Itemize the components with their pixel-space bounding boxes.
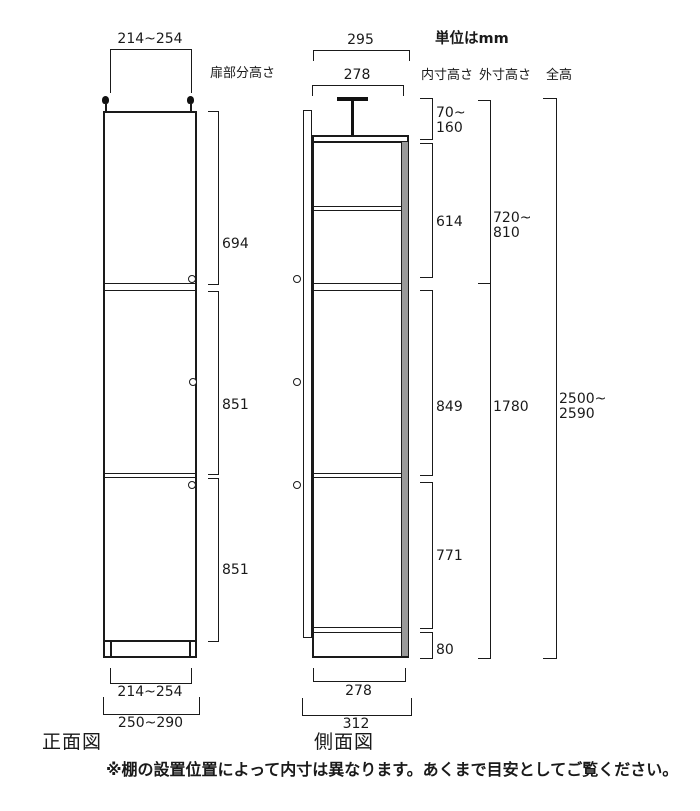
side-view-title: 側面図 [314,735,374,750]
side-bottom-outer-dim: 312 [302,717,410,732]
front-cabinet-outline [103,111,197,658]
total-height-line2: 2590 [559,406,595,422]
side-top-inner-dim: 278 [312,68,402,83]
side-door-knob-3 [293,481,301,489]
front-top-width-dim: 214~254 [110,32,190,47]
front-door-knob-2 [189,378,197,386]
inner-seg3-value: 849 [436,400,463,415]
side-door-knob-2 [293,378,301,386]
footnote: ※棚の設置位置によって内寸は異なります。あくまで目安としてご覧ください。 [106,762,678,777]
front-top-width-bracket [110,49,192,93]
dimension-diagram-canvas: 214~254 214~254 250~290 扉部分高さ 694 851 85… [0,0,700,811]
inner-seg5-value: 80 [436,643,454,658]
top-adjuster-stem-icon [351,101,354,135]
side-shelf-1 [312,206,401,211]
front-bottom-outer-bracket [103,697,200,715]
front-door-knob-3 [188,481,196,489]
outer-seg1-line1: 720~ [493,210,531,226]
side-back-panel-gray [401,142,409,656]
outer-height-header: 外寸高さ [479,68,531,83]
outer-seg1-line2: 810 [493,225,520,241]
inner-seg2-value: 614 [436,215,463,230]
inner-seg3-bracket [420,290,433,476]
side-bottom-board [312,627,401,633]
front-door-divider-1 [103,283,197,291]
front-door3-height: 851 [222,563,249,578]
inner-seg4-value: 771 [436,549,463,564]
inner-seg1-value: 70~160 [436,106,466,136]
inner-seg1-line2: 160 [436,120,463,136]
side-fixed-shelf-2 [312,473,401,478]
total-height-bracket [543,98,557,659]
side-bottom-inner-bracket [313,668,406,682]
front-door1-bracket [208,111,219,285]
front-door3-bracket [208,478,219,642]
total-height-value: 2500~2590 [559,392,606,422]
side-fixed-shelf-1 [312,283,401,291]
inner-seg5-bracket [420,632,433,659]
front-door1-height: 694 [222,237,249,252]
side-top-outer-bracket [313,50,410,61]
side-bottom-inner-dim: 278 [313,684,404,699]
side-door-knob-1 [293,275,301,283]
side-bottom-outer-bracket [302,698,412,716]
outer-seg1-value: 720~810 [493,211,531,241]
front-view-title: 正面図 [42,735,102,750]
front-base-top-line [103,640,197,642]
front-bottom-outer-dim: 250~290 [103,716,198,731]
front-door-divider-2 [103,473,197,478]
side-top-inner-bracket [312,85,404,96]
inner-height-header: 内寸高さ [421,68,473,83]
door-section-height-label: 扉部分高さ [210,66,275,81]
front-kick-right-line [189,641,191,657]
front-kick-left-line [110,641,112,657]
unit-label: 単位はmm [435,32,509,47]
inner-seg1-bracket [420,98,433,140]
front-door-knob-1 [188,275,196,283]
inner-seg4-bracket [420,482,433,629]
side-door-panel [303,110,312,638]
front-door2-height: 851 [222,398,249,413]
outer-seg2-value: 1780 [493,400,529,415]
total-height-header: 全高 [546,68,572,83]
side-top-outer-dim: 295 [313,33,408,48]
side-carcass-outline [312,135,409,658]
outer-seg1-bracket [478,100,491,284]
outer-seg2-bracket [478,283,491,659]
side-top-board-line [312,141,409,143]
inner-seg2-bracket [420,143,433,278]
front-bottom-inner-bracket [110,668,192,684]
front-door2-bracket [208,291,219,475]
total-height-line1: 2500~ [559,391,606,407]
inner-seg1-line1: 70~ [436,105,466,121]
